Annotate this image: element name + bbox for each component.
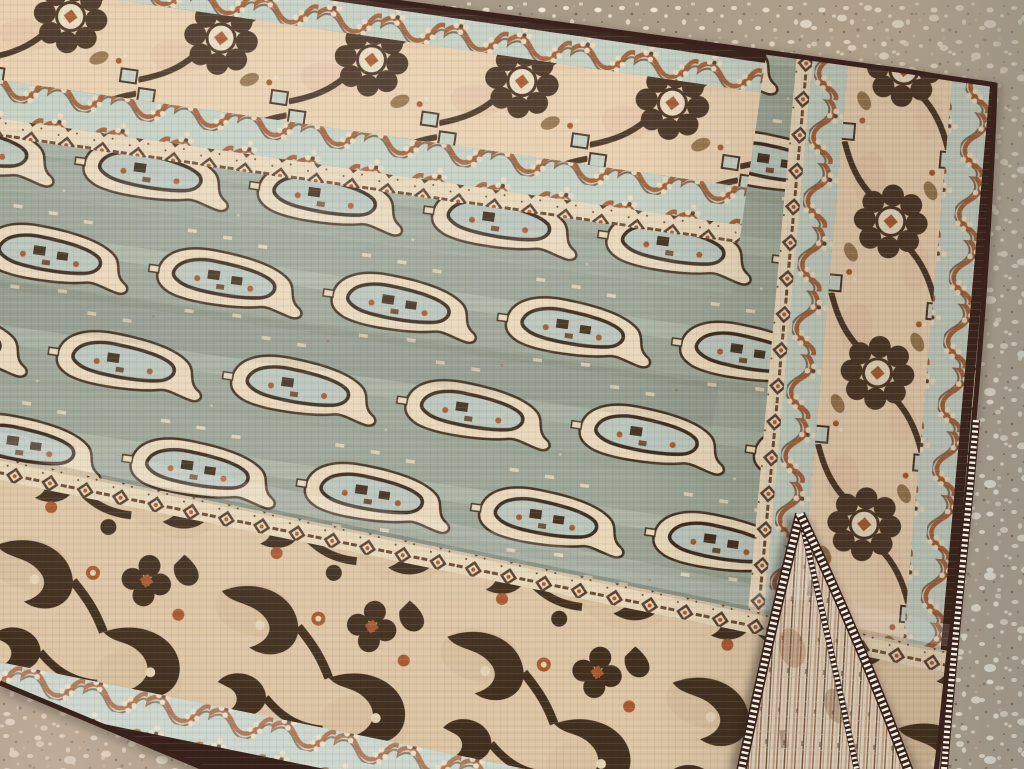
rug-photo: Folded antique rug on terrazzo floor	[0, 0, 1024, 769]
rug	[0, 0, 1024, 769]
rug-weave-texture	[0, 0, 1024, 769]
